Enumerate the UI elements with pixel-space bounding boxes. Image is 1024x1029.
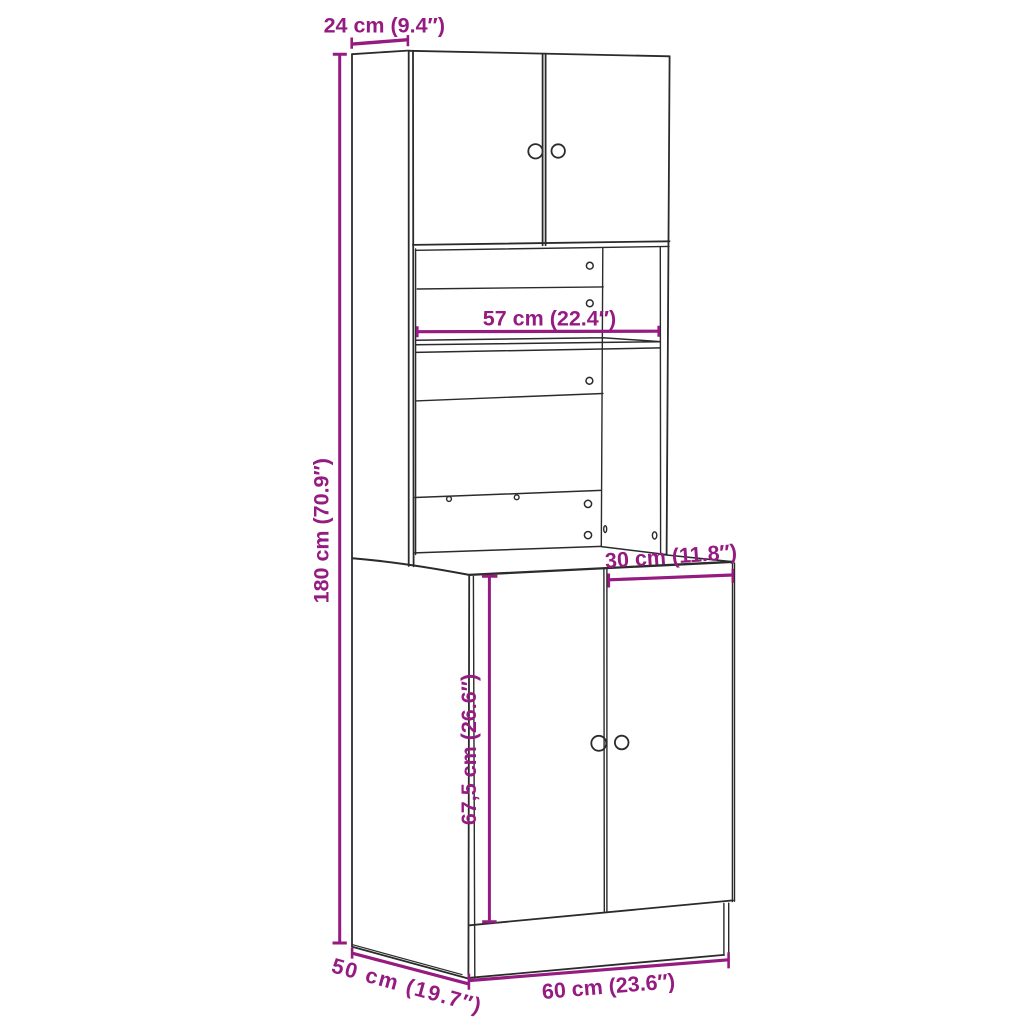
svg-text:67,5 cm (26.6″): 67,5 cm (26.6″)	[457, 674, 481, 825]
svg-text:180 cm (70.9″): 180 cm (70.9″)	[310, 458, 334, 603]
svg-text:30 cm (11.8″): 30 cm (11.8″)	[604, 540, 738, 573]
svg-text:50 cm (19.7″): 50 cm (19.7″)	[329, 954, 485, 1019]
svg-text:57 cm (22.4″): 57 cm (22.4″)	[483, 306, 616, 330]
svg-text:24 cm (9.4″): 24 cm (9.4″)	[324, 13, 445, 37]
